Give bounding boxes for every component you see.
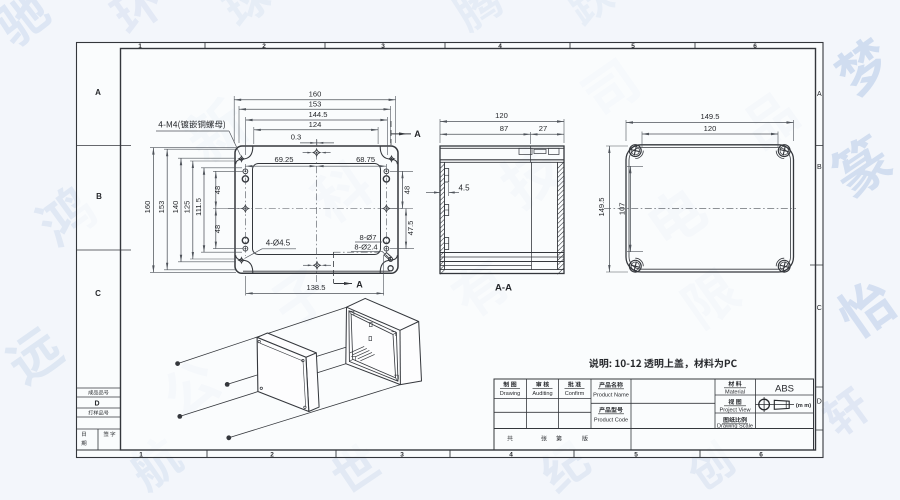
svg-text:B: B [817, 164, 822, 171]
svg-text:5: 5 [634, 451, 638, 458]
svg-text:6: 6 [753, 43, 757, 50]
svg-text:A: A [817, 91, 822, 98]
svg-text:160: 160 [143, 201, 152, 214]
svg-text:B: B [96, 192, 102, 201]
svg-text:111.5: 111.5 [194, 198, 203, 216]
svg-text:A: A [95, 88, 101, 97]
svg-text:107: 107 [618, 202, 627, 215]
svg-text:Product Code: Product Code [594, 418, 628, 424]
svg-text:4: 4 [509, 451, 513, 458]
svg-text:48: 48 [403, 186, 412, 194]
svg-text:8-Ø7: 8-Ø7 [360, 233, 377, 242]
svg-text:48: 48 [213, 186, 222, 194]
svg-text:153: 153 [157, 201, 166, 214]
svg-text:138.5: 138.5 [306, 283, 325, 292]
svg-text:(m m): (m m) [796, 403, 811, 409]
svg-text:69.25: 69.25 [274, 155, 293, 164]
svg-text:153: 153 [309, 99, 322, 108]
svg-text:87: 87 [500, 124, 508, 133]
svg-text:140: 140 [171, 201, 180, 214]
svg-text:Confirm: Confirm [565, 391, 585, 397]
svg-text:A: A [356, 280, 363, 290]
svg-text:2: 2 [262, 43, 266, 50]
svg-text:27: 27 [539, 124, 547, 133]
svg-text:160: 160 [309, 90, 322, 99]
svg-text:68.75: 68.75 [356, 155, 375, 164]
svg-text:125: 125 [183, 201, 192, 214]
svg-text:Project View: Project View [720, 408, 752, 414]
svg-text:Drawing: Drawing [500, 391, 521, 397]
svg-text:1: 1 [139, 451, 143, 458]
svg-text:2: 2 [270, 451, 274, 458]
svg-text:4-Ø4.5: 4-Ø4.5 [266, 239, 291, 248]
svg-text:1: 1 [138, 43, 142, 50]
svg-text:120: 120 [704, 124, 717, 133]
svg-text:Product Name: Product Name [593, 393, 629, 399]
svg-text:4.5: 4.5 [458, 184, 470, 193]
svg-text:6: 6 [759, 451, 763, 458]
svg-text:A: A [414, 129, 421, 139]
svg-text:5: 5 [631, 43, 635, 50]
svg-text:8-Ø2.4: 8-Ø2.4 [354, 243, 377, 252]
svg-text:144.5: 144.5 [308, 110, 327, 119]
svg-text:D: D [817, 399, 822, 406]
svg-text:149.5: 149.5 [597, 197, 606, 216]
svg-text:C: C [817, 305, 822, 312]
svg-text:0.3: 0.3 [291, 133, 302, 142]
svg-text:3: 3 [400, 451, 404, 458]
svg-text:Material: Material [725, 390, 745, 396]
svg-text:ABS: ABS [775, 384, 794, 395]
svg-text:Auditing: Auditing [532, 391, 552, 397]
svg-text:124: 124 [309, 120, 322, 129]
svg-text:Drawing Scale: Drawing Scale [717, 424, 753, 430]
svg-text:48: 48 [213, 225, 222, 233]
svg-text:4: 4 [498, 43, 502, 50]
svg-text:47.5: 47.5 [406, 221, 415, 236]
svg-text:3: 3 [381, 43, 385, 50]
svg-text:149.5: 149.5 [700, 112, 719, 121]
svg-text:C: C [95, 289, 101, 298]
svg-text:A-A: A-A [495, 283, 512, 294]
svg-text:D: D [94, 400, 99, 407]
svg-text:120: 120 [495, 111, 508, 120]
